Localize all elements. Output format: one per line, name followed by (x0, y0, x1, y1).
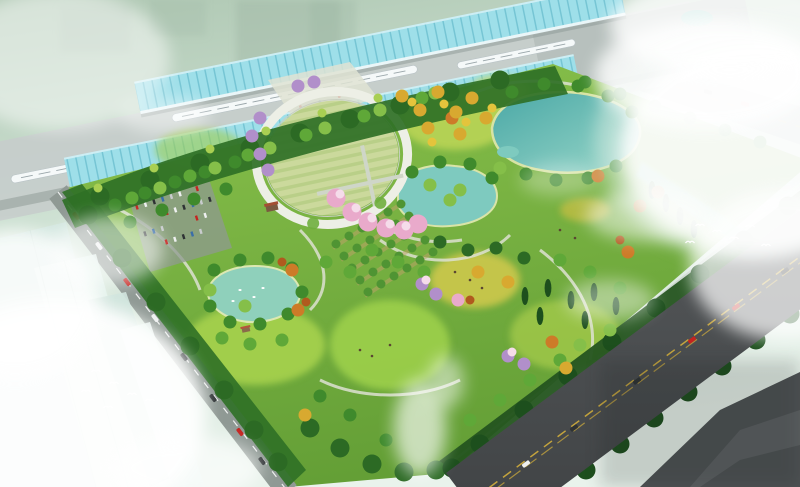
meadow-figures-part (359, 349, 362, 352)
tree-cluster-mid-part (204, 300, 217, 313)
autumn-trees-part (286, 264, 299, 277)
golden-trees-part (560, 362, 573, 375)
light-blossom-highlights-part (402, 222, 411, 231)
pink-blossom-trees-part (452, 294, 465, 307)
orchard-trees-part (387, 240, 396, 249)
tree-cluster-dark-part (490, 242, 503, 255)
tree-cluster-mid-part (296, 286, 309, 299)
purple-blossom-trees-part (430, 288, 443, 301)
tree-cluster-pale-palms-part (318, 109, 327, 118)
orchard-trees-part (384, 208, 393, 217)
tree-cluster-mid-part (406, 166, 419, 179)
tree-cluster-fresh-part (244, 338, 257, 351)
golden-trees-part (502, 276, 515, 289)
light-blossom-highlights-part (508, 348, 517, 357)
tree-cluster-mid-part (262, 252, 275, 265)
tree-cluster-mid-part (169, 176, 182, 189)
tree-cluster-deep-part (537, 307, 544, 325)
tree-cluster-dark-part (341, 110, 360, 129)
orchard-trees-part (416, 256, 425, 265)
tree-cluster-mid-part (229, 156, 242, 169)
orchard-trees-part (353, 244, 362, 253)
pink-blossom-trees-part (409, 215, 428, 234)
orchard-trees-part (397, 200, 406, 209)
tree-cluster-dark-part (331, 439, 350, 458)
tree-cluster-fresh-part (392, 256, 405, 269)
golden-trees-part (450, 106, 463, 119)
orchard-trees-part (361, 256, 370, 265)
tree-cluster-dark-part (491, 71, 510, 90)
tree-cluster-mid-part (224, 316, 237, 329)
tree-cluster-dark-part (147, 293, 166, 312)
tree-cluster-fresh-part (554, 254, 567, 267)
tree-cluster-fresh-part (344, 266, 357, 279)
rust-trees-part (466, 296, 475, 305)
tree-cluster-fresh-part (366, 244, 379, 257)
light-blossom-highlights-part (422, 276, 431, 285)
tree-cluster-mid-part (109, 199, 122, 212)
tree-cluster-mid-part (464, 158, 477, 171)
tree-cluster-mid-part (220, 183, 233, 196)
tree-cluster-light-part (374, 104, 387, 117)
scene-canvas (0, 0, 800, 487)
park-aerial-rendering (0, 0, 800, 487)
meadow-figures-part (454, 271, 457, 274)
orchard-trees-part (403, 264, 412, 273)
orchard-trees-part (340, 252, 349, 261)
tree-cluster-dark-part (363, 455, 382, 474)
golden-trees-part (480, 112, 493, 125)
golden-trees-part (432, 86, 445, 99)
tree-cluster-light-part (574, 339, 587, 352)
light-blossom-highlights-part (386, 220, 395, 229)
tree-cluster-dark-part (434, 236, 447, 249)
tree-cluster-light-part (209, 162, 222, 175)
orchard-trees-part (366, 236, 375, 245)
orchard-trees-part (364, 288, 373, 297)
tree-cluster-mid-part (234, 254, 247, 267)
purple-blossom-trees-part (518, 358, 531, 371)
golden-trees-part (472, 266, 485, 279)
tree-cluster-mid-part (344, 409, 357, 422)
purple-blossom-trees-part (262, 164, 275, 177)
tree-cluster-light-part (494, 162, 507, 175)
orchard-trees-part (332, 240, 341, 249)
light-blossom-highlights-part (336, 190, 345, 199)
tree-cluster-fresh-part (276, 334, 289, 347)
tree-cluster-fresh-part (584, 266, 597, 279)
tree-cluster-mid-part (139, 187, 152, 200)
light-blossom-highlights-part (368, 214, 377, 223)
tree-cluster-mid-part (538, 78, 551, 91)
fog-clouds-part-part (565, 280, 655, 320)
egrets-on-pond-part (231, 300, 234, 302)
tree-cluster-fresh-part (126, 192, 139, 205)
golden-light-trees-part (462, 118, 471, 127)
orchard-trees-part (369, 268, 378, 277)
tree-cluster-mid-part (188, 193, 201, 206)
tree-cluster-light-part (454, 184, 467, 197)
fog-clouds-part-part (520, 164, 600, 196)
tree-cluster-fresh-part (464, 414, 477, 427)
fog-clouds-part-part (53, 215, 163, 285)
tree-cluster-pale-palms-part (94, 184, 103, 193)
meadow-figures-part (469, 279, 472, 282)
golden-trees-part (299, 409, 312, 422)
golden-light-trees-part (488, 104, 497, 113)
tree-cluster-deep-part (545, 279, 552, 297)
orchard-trees-part (390, 272, 399, 281)
dark-city-corner (600, 360, 800, 487)
purple-blossom-trees-part (254, 148, 267, 161)
egrets-on-pond-part (238, 289, 241, 291)
meadow-figures-part (559, 229, 562, 232)
golden-trees-part (414, 104, 427, 117)
tree-cluster-dark-part (301, 419, 320, 438)
tree-cluster-fresh-part (416, 92, 429, 105)
tree-cluster-fresh-part (300, 129, 313, 142)
purple-blossom-trees-part (246, 130, 259, 143)
golden-trees-part (422, 122, 435, 135)
tree-cluster-dark-part (269, 453, 288, 472)
meadow-figures-part (389, 344, 392, 347)
tree-cluster-light-part (239, 300, 252, 313)
tree-cluster-mid-part (314, 390, 327, 403)
tree-cluster-pale-palms-part (374, 94, 383, 103)
purple-blossom-trees-part (254, 112, 267, 125)
rust-trees-part (278, 258, 287, 267)
tree-cluster-fresh-part (184, 170, 197, 183)
tree-cluster-mid-part (579, 76, 592, 89)
tree-cluster-light-part (424, 179, 437, 192)
tree-cluster-deep-part (522, 287, 529, 305)
tree-cluster-fresh-part (242, 149, 255, 162)
fog-clouds-part-part (428, 356, 464, 408)
dark-city-corner-part (600, 360, 800, 487)
meadow-figures-part (371, 355, 374, 358)
tree-cluster-dark-part (245, 421, 264, 440)
tree-cluster-pale-palms-part (262, 127, 271, 136)
tree-cluster-dark-part (462, 244, 475, 257)
golden-light-trees-part (408, 98, 417, 107)
tree-cluster-light-part (154, 182, 167, 195)
tree-cluster-fresh-part (320, 256, 333, 269)
tree-cluster-mid-part (208, 264, 221, 277)
rust-trees-part (302, 298, 311, 307)
autumn-trees-part (292, 304, 305, 317)
tree-cluster-pale-palms-part (150, 164, 159, 173)
orchard-trees-part (429, 248, 438, 257)
orchard-trees-part (345, 232, 354, 241)
purple-blossom-trees-part (308, 76, 321, 89)
tree-cluster-pale-palms-part (206, 145, 215, 154)
light-blossom-highlights-part (352, 204, 361, 213)
connector-pond (497, 146, 519, 158)
autumn-trees-part (622, 246, 635, 259)
golden-trees-part (396, 90, 409, 103)
autumn-trees-part (546, 336, 559, 349)
orchard-trees-part (421, 236, 430, 245)
tree-cluster-fresh-part (358, 110, 371, 123)
egrets-on-pond-part (261, 287, 264, 289)
orchard-trees-part (356, 276, 365, 285)
tree-cluster-fresh-part (494, 394, 507, 407)
golden-light-trees-part (440, 100, 449, 109)
egrets-on-pond-part (252, 296, 255, 298)
tree-cluster-mid-part (254, 318, 267, 331)
orchard-trees-part (377, 280, 386, 289)
tree-cluster-mid-part (380, 434, 393, 447)
tree-cluster-mid-part (434, 156, 447, 169)
golden-trees-part (466, 92, 479, 105)
meadow-figures-part (481, 287, 484, 290)
tree-cluster-dark-part (181, 337, 200, 356)
tree-cluster-dark-part (518, 252, 531, 265)
orchard-trees-part (382, 260, 391, 269)
tree-cluster-light-part (604, 324, 617, 337)
golden-trees-part (454, 128, 467, 141)
tree-cluster-mid-part (506, 86, 519, 99)
purple-blossom-trees-part (292, 80, 305, 93)
golden-light-trees-part (428, 138, 437, 147)
tree-cluster-fresh-part (216, 332, 229, 345)
tree-cluster-dark-part (215, 381, 234, 400)
fog-clouds-part-part (586, 189, 710, 241)
tree-cluster-light-part (204, 284, 217, 297)
tree-cluster-mid-part (156, 204, 169, 217)
orchard-trees-part (408, 244, 417, 253)
tree-cluster-light-part (319, 122, 332, 135)
meadow-figures-part (574, 237, 577, 240)
tree-cluster-light-part (444, 194, 457, 207)
tree-cluster-fresh-part (524, 374, 537, 387)
